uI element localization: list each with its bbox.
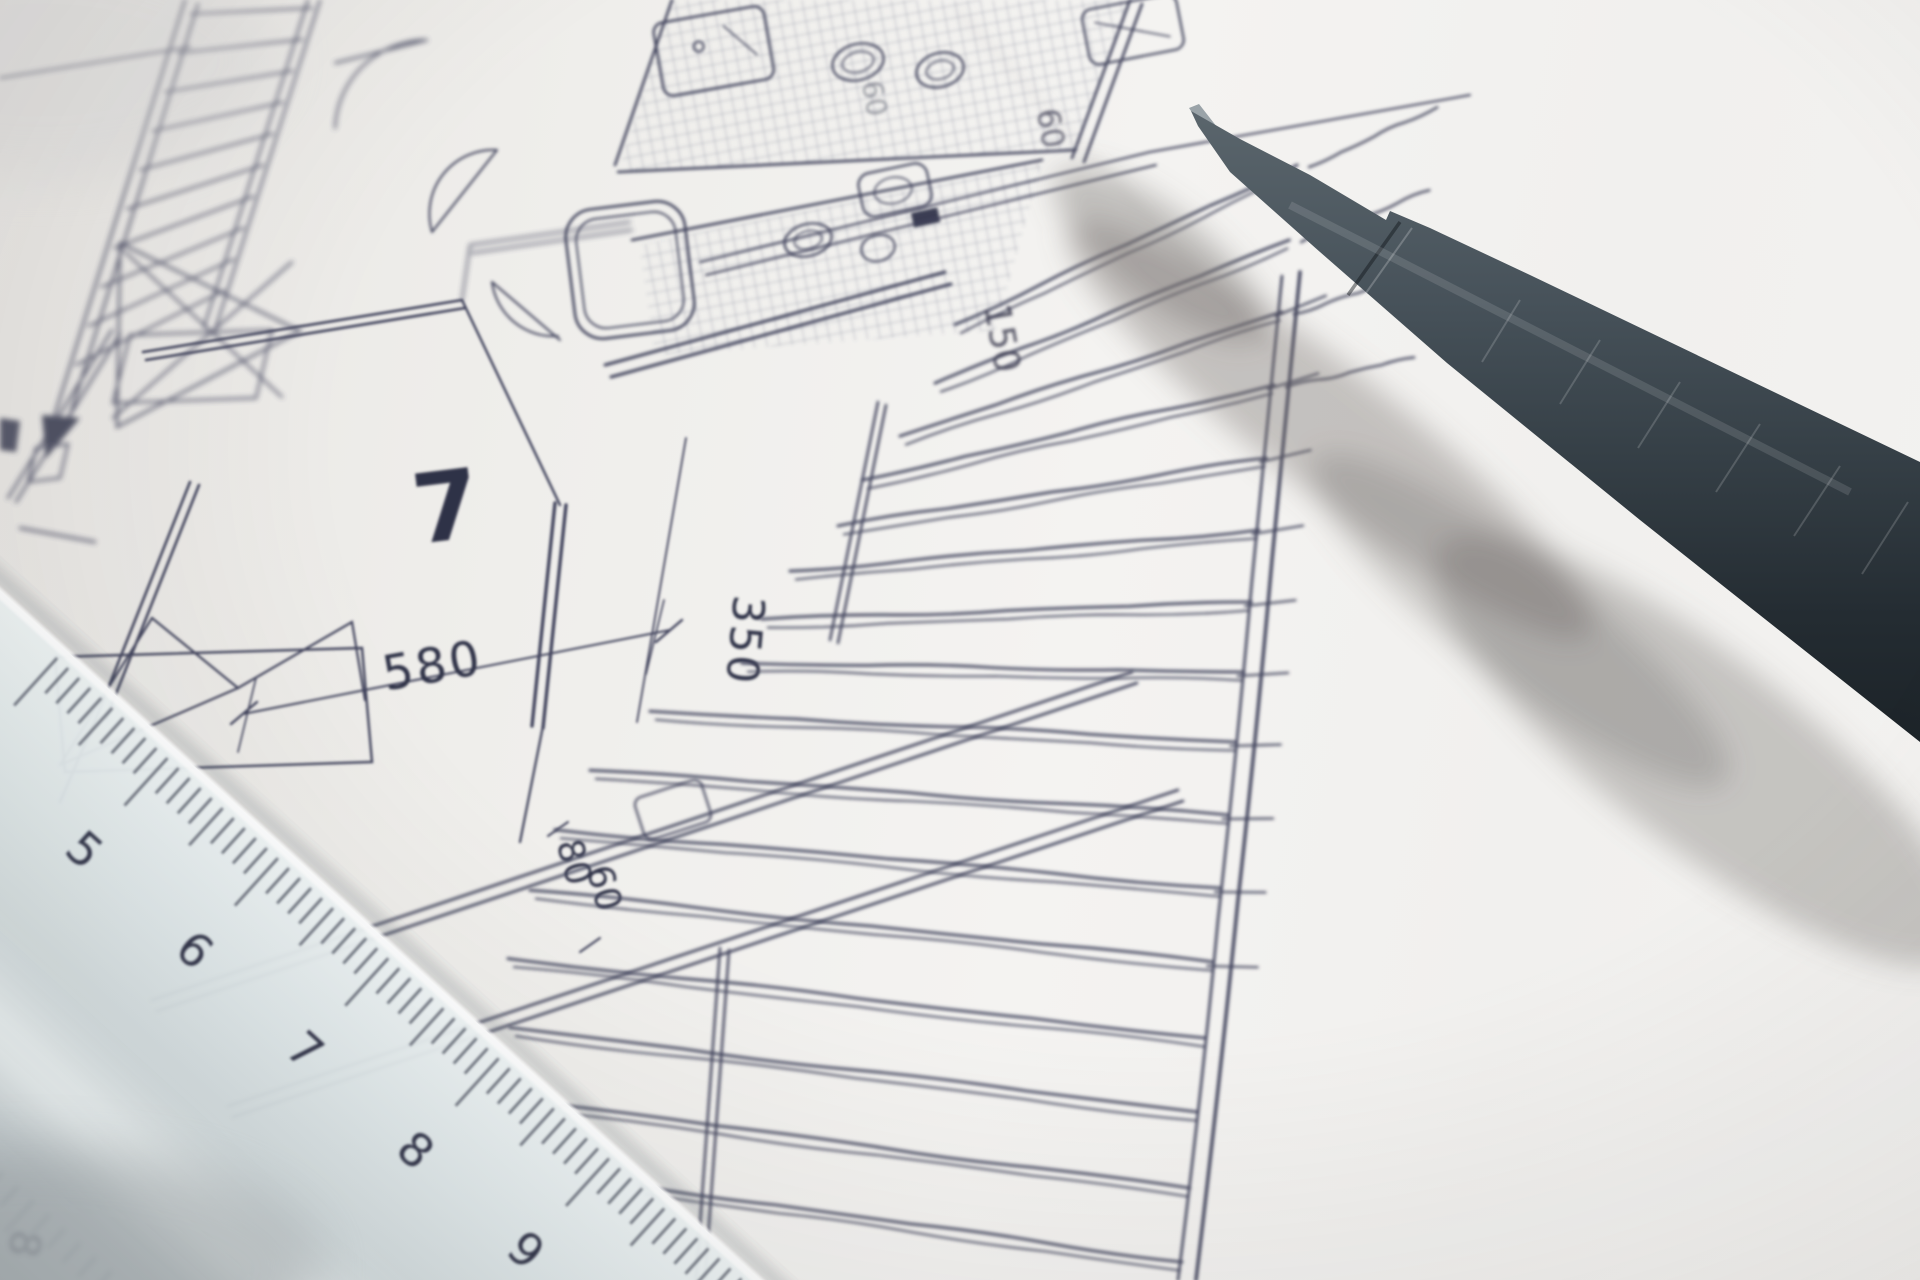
deck-board-line xyxy=(650,711,1237,742)
deck-rail-tick xyxy=(1245,600,1295,606)
wall-cut-fill xyxy=(0,418,20,452)
deck-board-line xyxy=(844,467,1264,535)
door-arc-2 xyxy=(492,282,560,340)
plan-photo-canvas: 60 7 580 350 80 60 xyxy=(0,0,1920,1280)
deck-board-line xyxy=(838,458,1266,526)
deck-board-line xyxy=(561,838,1219,896)
door-arc-1 xyxy=(429,150,497,232)
deck-board-line xyxy=(510,1028,1198,1112)
dim-label-580: 580 xyxy=(378,630,487,703)
deck-board-line xyxy=(596,779,1227,824)
deck-board-line xyxy=(530,890,1213,962)
deck-board-stub xyxy=(1309,107,1437,167)
door-threshold xyxy=(633,778,713,841)
topleft-soft-cast xyxy=(0,0,280,180)
deck-board-line xyxy=(796,539,1257,580)
dimension-350: 350 xyxy=(637,438,774,722)
room-number-label: 7 xyxy=(406,447,486,566)
deck-board-line xyxy=(590,770,1229,815)
dim-label-60-top: 60 xyxy=(1029,106,1071,151)
deck-board-line xyxy=(514,967,1204,1046)
deck-board-line xyxy=(768,611,1249,628)
photo-architectural-plan: 60 7 580 350 80 60 xyxy=(0,0,1920,1280)
dim-label-350: 350 xyxy=(715,593,774,687)
wall-section-fill xyxy=(42,415,80,458)
deck-board-line xyxy=(555,830,1221,888)
deck-board-line xyxy=(536,899,1211,971)
dimension-580: 580 xyxy=(231,600,682,752)
dim-label-bath: 60 xyxy=(855,78,894,119)
deck-board-line xyxy=(508,959,1206,1038)
stair-tread-line xyxy=(101,228,243,287)
stair-tread-line xyxy=(89,259,234,326)
deck-board-line xyxy=(516,1036,1196,1120)
